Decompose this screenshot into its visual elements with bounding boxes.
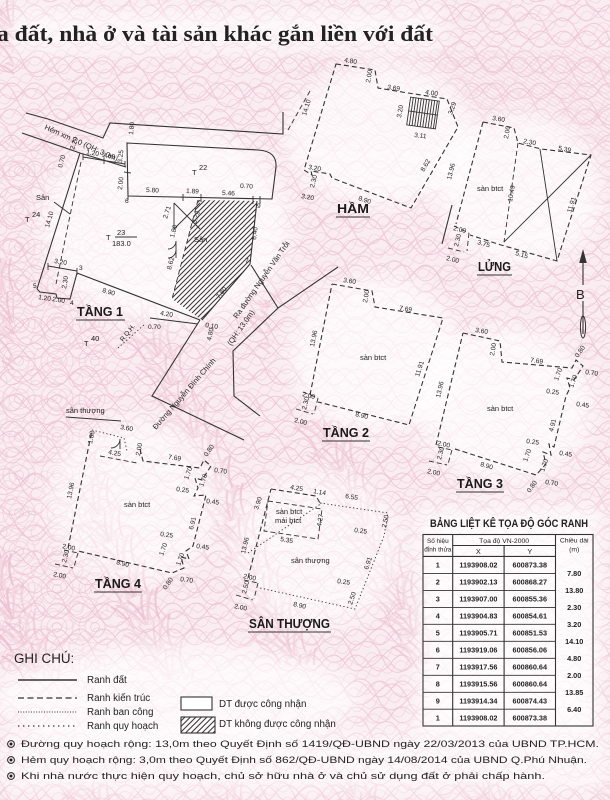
svg-text:DT được công nhận: DT được công nhận — [219, 699, 306, 710]
svg-text:3: 3 — [79, 265, 83, 272]
svg-text:0.70: 0.70 — [148, 324, 161, 331]
svg-text:sàn btct: sàn btct — [360, 353, 387, 362]
svg-text:4.80: 4.80 — [567, 654, 581, 663]
svg-text:sàn btct: sàn btct — [477, 184, 504, 193]
svg-text:3.25: 3.25 — [117, 149, 125, 163]
svg-text:40: 40 — [91, 334, 99, 343]
svg-text:6: 6 — [125, 198, 129, 205]
svg-text:600854.61: 600854.61 — [513, 611, 548, 620]
svg-text:Ranh ban công: Ranh ban công — [87, 707, 153, 718]
svg-text:Sân: Sân — [194, 235, 207, 244]
svg-text:sân thượng: sân thượng — [291, 556, 330, 565]
svg-text:24: 24 — [32, 210, 40, 219]
svg-text:1193915.56: 1193915.56 — [459, 679, 497, 688]
svg-text:23: 23 — [117, 228, 125, 237]
svg-text:GHI CHÚ:: GHI CHÚ: — [14, 651, 74, 666]
svg-text:5: 5 — [33, 283, 37, 290]
svg-text:4: 4 — [70, 300, 74, 307]
svg-text:600860.64: 600860.64 — [513, 662, 548, 671]
svg-text:1193914.34: 1193914.34 — [459, 696, 498, 705]
svg-text:7.80: 7.80 — [567, 569, 581, 578]
svg-text:2.00: 2.00 — [567, 671, 581, 680]
svg-text:2: 2 — [436, 578, 440, 587]
svg-text:600851.53: 600851.53 — [513, 628, 548, 637]
svg-text:5: 5 — [436, 628, 440, 637]
svg-text:1.89: 1.89 — [186, 188, 199, 195]
svg-text:14.10: 14.10 — [565, 637, 583, 646]
svg-text:Ranh đất: Ranh đất — [87, 675, 127, 686]
svg-text:2.00: 2.00 — [117, 176, 125, 190]
svg-text:Sân: Sân — [36, 193, 49, 202]
svg-text:LỬNG: LỬNG — [478, 259, 511, 274]
svg-text:8: 8 — [436, 679, 440, 688]
svg-text:1193902.13: 1193902.13 — [459, 578, 497, 587]
svg-text:5.46: 5.46 — [222, 190, 235, 197]
svg-text:T: T — [106, 233, 111, 242]
svg-text:TẦNG 2: TẦNG 2 — [323, 425, 369, 440]
svg-text:6: 6 — [436, 645, 440, 654]
svg-text:1193905.71: 1193905.71 — [459, 628, 497, 637]
svg-text:3: 3 — [436, 595, 440, 604]
svg-text:600873.38: 600873.38 — [513, 561, 548, 570]
svg-text:SÂN THƯỢNG: SÂN THƯỢNG — [249, 616, 330, 631]
svg-text:DT không được công nhận: DT không được công nhận — [219, 719, 336, 730]
svg-text:sàn btct: sàn btct — [487, 404, 514, 413]
svg-text:600874.43: 600874.43 — [513, 696, 548, 705]
svg-text:Ranh quy hoạch: Ranh quy hoạch — [87, 721, 158, 732]
svg-text:9: 9 — [257, 203, 261, 210]
svg-text:BẢNG LIỆT KÊ TỌA ĐỘ GÓC RANH: BẢNG LIỆT KÊ TỌA ĐỘ GÓC RANH — [430, 517, 588, 530]
svg-text:6.40: 6.40 — [567, 705, 581, 714]
svg-text:T: T — [192, 168, 197, 177]
svg-text:3.20: 3.20 — [567, 620, 581, 629]
svg-text:sàn btct: sàn btct — [124, 500, 151, 509]
svg-text:HẦM: HẦM — [337, 201, 369, 216]
svg-text:B: B — [576, 287, 585, 302]
svg-text:(m): (m) — [569, 547, 579, 554]
svg-text:TẦNG 4: TẦNG 4 — [95, 576, 142, 591]
svg-text:đỉnh thửa: đỉnh thửa — [424, 546, 451, 554]
svg-text:T: T — [84, 339, 89, 348]
svg-text:183.0: 183.0 — [112, 239, 131, 248]
svg-text:T: T — [25, 215, 30, 224]
svg-text:600856.06: 600856.06 — [513, 645, 548, 654]
svg-text:2.30: 2.30 — [567, 603, 581, 612]
svg-text:Hẻm quy hoạch rộng: 3,0m theo: Hẻm quy hoạch rộng: 3,0m theo Quyết Định… — [21, 755, 587, 766]
svg-text:1: 1 — [436, 713, 440, 722]
svg-text:1193919.06: 1193919.06 — [459, 645, 497, 654]
svg-text:Khi nhà nước thực hiện quy hoạ: Khi nhà nước thực hiện quy hoạch, chủ sở… — [21, 771, 545, 782]
svg-text:Tọa độ VN-2000: Tọa độ VN-2000 — [479, 538, 529, 545]
svg-text:mái btct: mái btct — [275, 516, 302, 525]
svg-text:1.80: 1.80 — [128, 121, 136, 135]
svg-text:1: 1 — [436, 561, 440, 570]
svg-text:Đường quy hoạch rộng: 13,0m th: Đường quy hoạch rộng: 13,0m theo Quyết Đ… — [21, 739, 599, 750]
svg-text:5.80: 5.80 — [146, 187, 159, 194]
svg-text:sàn btct: sàn btct — [276, 507, 303, 516]
svg-text:TẦNG 3: TẦNG 3 — [457, 476, 503, 491]
svg-text:a đất, nhà ở và tài sản khác g: a đất, nhà ở và tài sản khác gắn liền vớ… — [0, 21, 434, 46]
svg-text:7: 7 — [245, 258, 249, 265]
svg-text:13.85: 13.85 — [565, 688, 583, 697]
svg-text:Y: Y — [527, 547, 532, 556]
svg-text:1193907.00: 1193907.00 — [459, 595, 497, 604]
svg-text:600860.64: 600860.64 — [513, 679, 548, 688]
svg-text:1193908.02: 1193908.02 — [459, 561, 497, 570]
svg-text:7: 7 — [436, 662, 440, 671]
svg-text:22: 22 — [199, 163, 207, 172]
svg-text:Ranh kiến trúc: Ranh kiến trúc — [87, 693, 150, 704]
svg-text:600868.27: 600868.27 — [513, 578, 548, 587]
svg-text:1193908.02: 1193908.02 — [459, 713, 497, 722]
svg-text:9: 9 — [436, 696, 440, 705]
svg-text:Chiều dài: Chiều dài — [560, 536, 589, 545]
svg-text:600855.36: 600855.36 — [513, 595, 548, 604]
svg-text:0.70: 0.70 — [240, 183, 253, 190]
svg-text:sân thượng: sân thượng — [66, 406, 105, 415]
svg-text:13.80: 13.80 — [565, 586, 583, 595]
svg-text:1193904.83: 1193904.83 — [459, 611, 497, 620]
svg-text:1193917.56: 1193917.56 — [459, 662, 497, 671]
svg-text:TẦNG 1: TẦNG 1 — [77, 304, 123, 319]
svg-text:Số hiệu: Số hiệu — [427, 536, 449, 545]
svg-text:600873.38: 600873.38 — [513, 713, 548, 722]
svg-text:X: X — [476, 547, 481, 556]
